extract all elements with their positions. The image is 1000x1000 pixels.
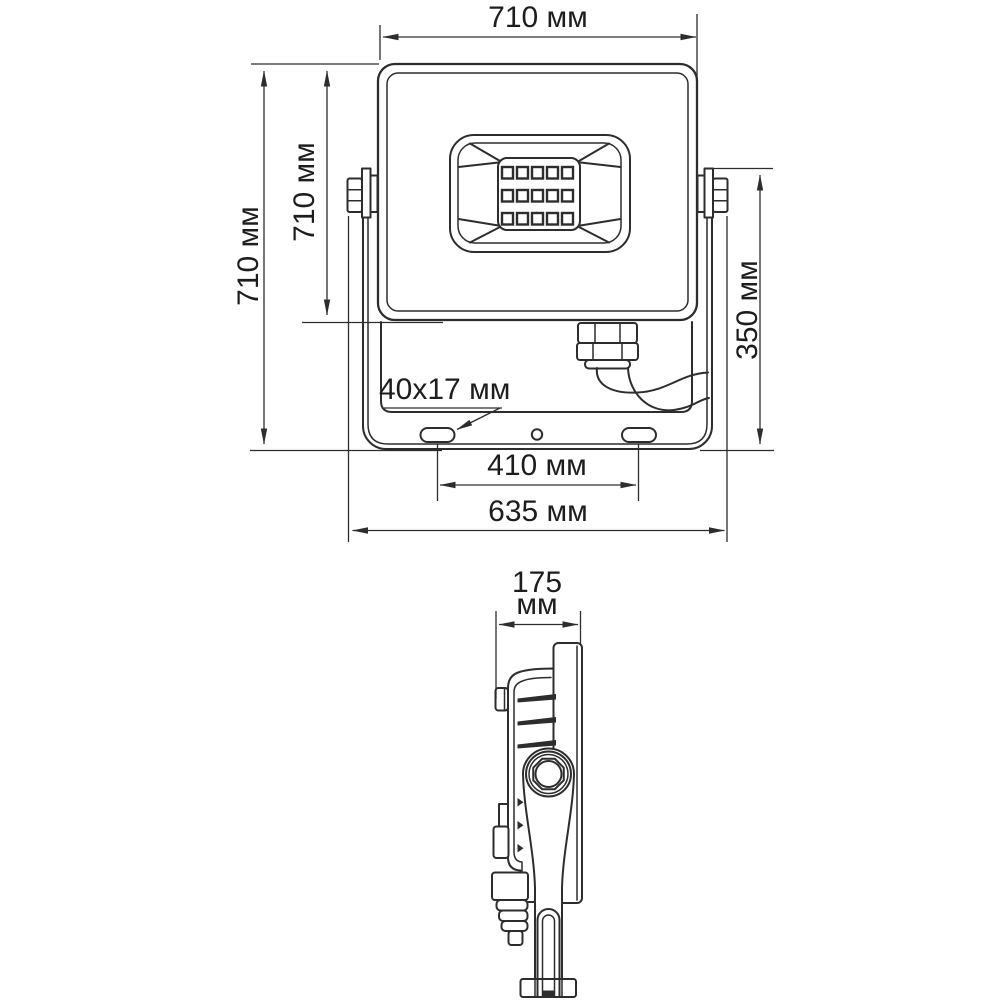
pivot-bolt-left: [348, 169, 378, 218]
dim-slot-spacing-label: 410 мм: [487, 449, 587, 482]
pivot-bolt-right: [698, 169, 728, 218]
mounting-slot-right: [622, 428, 656, 442]
dim-slot-spacing: 410 мм: [438, 444, 639, 501]
side-view: [492, 643, 582, 997]
led-module: [450, 135, 630, 252]
dim-bracket-height-label: 350 мм: [731, 260, 764, 360]
technical-drawing-page: 710 мм 710 мм 710 мм 350 мм 40x17 мм: [0, 0, 1000, 1000]
dim-body-height-label: 710 мм: [288, 142, 321, 242]
mounting-hole-center: [532, 429, 542, 439]
dim-overall-height-label: 710 мм: [232, 206, 265, 306]
led-chip-grid: [502, 167, 573, 225]
mounting-slot-left: [421, 428, 455, 442]
floodlight-dimension-drawing: 710 мм 710 мм 710 мм 350 мм 40x17 мм: [0, 0, 1000, 1000]
side-tab: [496, 688, 509, 711]
slot-size-label: 40x17 мм: [379, 373, 510, 406]
dim-base-width-label: 635 мм: [488, 495, 588, 528]
dim-top-width-label: 710 мм: [488, 1, 588, 34]
dim-depth-unit: мм: [516, 588, 557, 621]
cable-gland: [577, 323, 638, 369]
